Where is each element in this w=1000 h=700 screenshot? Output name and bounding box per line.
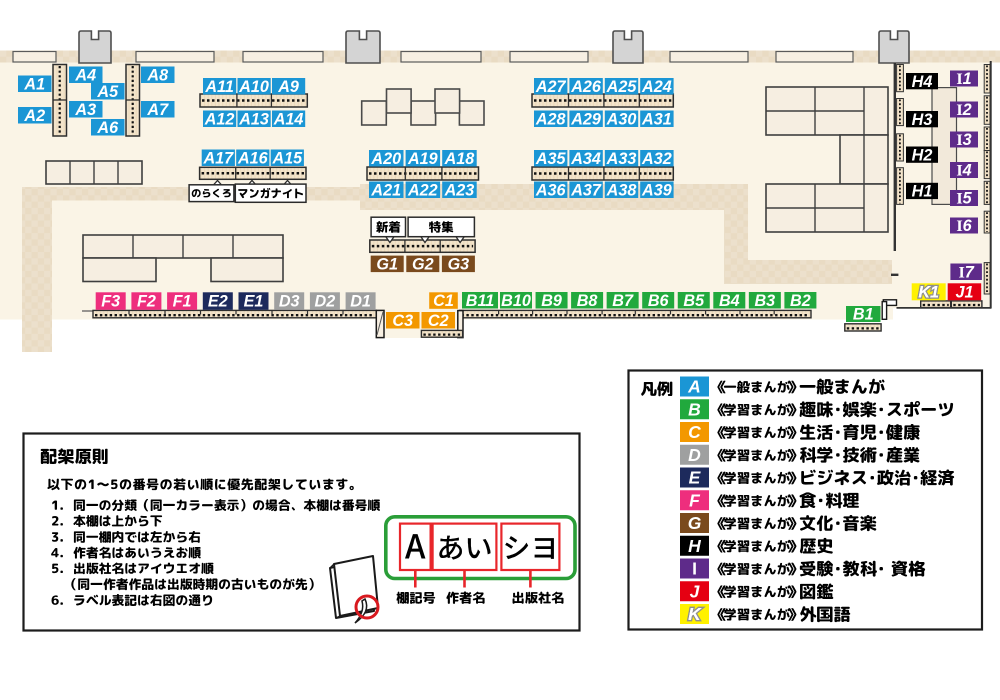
svg-text:J: J: [690, 582, 701, 602]
svg-text:I6: I6: [956, 217, 972, 235]
svg-text:B7: B7: [612, 292, 634, 310]
svg-text:H: H: [688, 536, 701, 556]
svg-text:A38: A38: [606, 181, 637, 199]
svg-text:A5: A5: [96, 83, 119, 101]
svg-text:A4: A4: [74, 66, 96, 84]
svg-text:D1: D1: [350, 293, 371, 311]
svg-text:A7: A7: [146, 101, 169, 119]
svg-text:A13: A13: [238, 110, 269, 128]
svg-text:A12: A12: [204, 110, 235, 128]
svg-text:A29: A29: [570, 110, 601, 128]
svg-text:G: G: [688, 513, 702, 533]
svg-text:A35: A35: [535, 150, 567, 168]
svg-text:A19: A19: [407, 150, 438, 168]
svg-text:C1: C1: [433, 292, 454, 310]
svg-text:C2: C2: [428, 312, 449, 330]
svg-text:A16: A16: [237, 149, 269, 167]
svg-text:A6: A6: [96, 119, 119, 137]
svg-text:B1: B1: [853, 306, 874, 324]
svg-text:D: D: [688, 445, 701, 465]
svg-text:B6: B6: [648, 292, 670, 310]
svg-text:I2: I2: [956, 101, 971, 119]
svg-text:I: I: [692, 559, 697, 579]
svg-text:B11: B11: [466, 292, 495, 310]
svg-text:A22: A22: [407, 181, 438, 199]
svg-text:H1: H1: [912, 183, 933, 201]
svg-text:A34: A34: [570, 150, 601, 168]
svg-text:F1: F1: [173, 293, 192, 311]
svg-text:C3: C3: [392, 312, 413, 330]
svg-text:H4: H4: [912, 73, 933, 91]
svg-text:A3: A3: [74, 101, 96, 119]
svg-text:B9: B9: [541, 292, 562, 310]
svg-text:I7: I7: [958, 263, 974, 281]
svg-text:B3: B3: [754, 292, 775, 310]
svg-text:D2: D2: [315, 293, 336, 311]
svg-text:B8: B8: [577, 292, 598, 310]
svg-text:B10: B10: [501, 292, 531, 310]
svg-text:A17: A17: [202, 149, 234, 167]
svg-text:I3: I3: [956, 131, 971, 149]
svg-text:A28: A28: [535, 110, 566, 128]
svg-text:I4: I4: [956, 162, 971, 180]
svg-text:A21: A21: [370, 181, 401, 199]
svg-text:A36: A36: [535, 181, 567, 199]
svg-text:G3: G3: [448, 255, 470, 273]
svg-text:A32: A32: [641, 150, 672, 168]
svg-text:I1: I1: [956, 70, 971, 88]
svg-text:A27: A27: [535, 78, 567, 96]
svg-text:B: B: [688, 399, 701, 419]
svg-text:A33: A33: [606, 150, 637, 168]
svg-text:K1: K1: [918, 283, 939, 301]
svg-text:A24: A24: [641, 78, 672, 96]
svg-text:A18: A18: [444, 150, 475, 168]
svg-text:A8: A8: [146, 66, 168, 84]
svg-text:F: F: [689, 490, 701, 510]
svg-text:A37: A37: [570, 181, 602, 199]
svg-text:A1: A1: [23, 75, 45, 93]
svg-text:A20: A20: [370, 150, 401, 168]
svg-text:E2: E2: [208, 293, 228, 311]
svg-text:A39: A39: [641, 181, 672, 199]
svg-text:F3: F3: [101, 293, 120, 311]
svg-text:H3: H3: [912, 111, 933, 129]
svg-text:K: K: [688, 604, 702, 624]
svg-text:A10: A10: [238, 78, 269, 96]
svg-text:A15: A15: [271, 149, 303, 167]
svg-text:B2: B2: [790, 292, 811, 310]
svg-text:E1: E1: [244, 293, 264, 311]
svg-text:D3: D3: [279, 293, 300, 311]
svg-text:A11: A11: [204, 78, 234, 96]
svg-text:A26: A26: [570, 78, 602, 96]
svg-text:A30: A30: [606, 110, 637, 128]
svg-text:J1: J1: [955, 283, 973, 301]
svg-text:A23: A23: [444, 181, 475, 199]
svg-text:A14: A14: [273, 110, 304, 128]
svg-text:G1: G1: [376, 255, 398, 273]
svg-text:E: E: [689, 468, 702, 488]
svg-text:B5: B5: [683, 292, 705, 310]
svg-text:A2: A2: [23, 107, 45, 125]
svg-text:C: C: [688, 422, 701, 442]
svg-text:G2: G2: [412, 255, 434, 273]
svg-text:F2: F2: [137, 293, 156, 311]
svg-text:I5: I5: [956, 190, 972, 208]
svg-text:B4: B4: [719, 292, 740, 310]
svg-text:A: A: [687, 377, 701, 397]
svg-text:A31: A31: [641, 110, 672, 128]
svg-text:A9: A9: [277, 78, 299, 96]
svg-text:H2: H2: [912, 146, 933, 164]
svg-text:A25: A25: [606, 78, 638, 96]
